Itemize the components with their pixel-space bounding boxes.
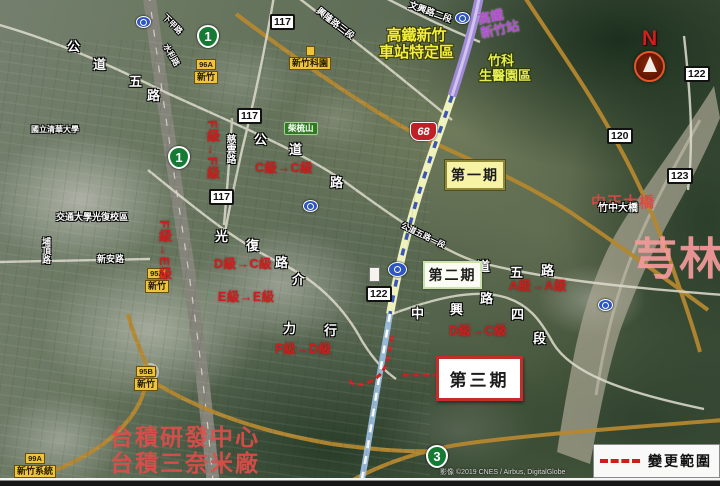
shield-number: 3 xyxy=(433,449,440,464)
county-route-117c: 117 xyxy=(209,189,234,205)
tsmc-fab-label: 台積三奈米廠 xyxy=(110,450,260,476)
interchange-name: 新竹系統 xyxy=(14,465,56,478)
phase-3-label: 第三期 xyxy=(436,356,523,401)
road-label: 路 xyxy=(330,172,343,191)
county-route-117b: 117 xyxy=(237,108,262,124)
road-label: 中 xyxy=(411,303,424,322)
qionglin-label: 芎林 xyxy=(633,238,720,282)
county-route-123: 123 xyxy=(667,168,693,184)
park-icon xyxy=(306,46,315,56)
legend-label: 變更範圍 xyxy=(648,451,712,471)
road-label: 五 xyxy=(510,262,523,281)
compass-north-label: N xyxy=(642,27,657,51)
grade-change-label: D級→C級 xyxy=(449,320,507,339)
hill-sign: 柴梳山 xyxy=(284,122,318,135)
interchange-code: 96A xyxy=(196,59,216,70)
county-route-120: 120 xyxy=(607,128,633,144)
interchange-icon xyxy=(388,262,407,277)
road-label: 路 xyxy=(480,288,493,307)
county-route-122a: 122 xyxy=(684,66,710,82)
road-label: 五 xyxy=(129,71,142,90)
compass-rose-icon xyxy=(634,51,665,82)
shield-number: 1 xyxy=(204,29,211,44)
road-label: 介 xyxy=(292,269,305,288)
bottom-bar xyxy=(0,478,720,486)
tsmc-rd-label: 台積研發中心 xyxy=(110,424,260,450)
interchange-sign-99a: 99A 新竹系統 xyxy=(14,453,56,478)
park-name: 新竹科園 xyxy=(289,57,331,70)
grade-change-label: C級→C級 xyxy=(255,157,313,176)
place-label: 交通大學光復校區 xyxy=(56,210,128,223)
interchange-code: 99A xyxy=(25,453,45,464)
map-attribution: 影像 ©2019 CNES / Airbus, DigitalGlobe xyxy=(440,467,565,477)
shield-number: 1 xyxy=(175,150,182,165)
grade-change-label: D級→C級 xyxy=(214,253,272,272)
hsr-district-line2: 車站特定區 xyxy=(379,45,454,62)
place-label: 國立清華大學 xyxy=(31,124,79,135)
county-route-117a: 117 xyxy=(270,14,295,30)
hsr-district-label: 高鐵新竹 車站特定區 xyxy=(379,28,454,61)
grade-change-label: F級→D級 xyxy=(275,338,332,357)
road-label: 公 xyxy=(67,36,80,55)
map-figure: 1 1 3 68 117 117 117 120 122 123 122 96A… xyxy=(0,0,720,486)
road-label: 興 xyxy=(450,299,463,318)
road-label: 四 xyxy=(511,304,524,323)
biomed-line1: 竹科 xyxy=(488,54,531,69)
phase-1-label: 第一期 xyxy=(445,160,505,190)
small-sign xyxy=(369,267,380,282)
science-park-sign: 新竹科園 xyxy=(289,46,331,70)
interchange-icon xyxy=(598,299,613,311)
hsr-district-line1: 高鐵新竹 xyxy=(379,28,454,45)
route-shield-expressway-68: 68 xyxy=(410,122,437,141)
road-label: 道 xyxy=(289,139,302,158)
legend: 變更範圍 xyxy=(593,444,720,478)
biomed-park-label: 竹科 生醫園區 xyxy=(479,54,531,84)
road-label: 埔頂路 xyxy=(40,237,53,264)
road-label: 路 xyxy=(275,252,288,271)
road-label: 段 xyxy=(533,328,546,347)
interchange-sign-95b: 95B 新竹 xyxy=(134,366,158,391)
road-label: 公 xyxy=(254,129,267,148)
road-label: 行 xyxy=(324,320,337,339)
road-label: 力 xyxy=(283,318,296,337)
shield-number: 68 xyxy=(417,126,429,138)
county-route-122b: 122 xyxy=(366,286,392,302)
road-label: 路 xyxy=(147,85,160,104)
grade-change-label: F級→E級 xyxy=(155,220,174,281)
interchange-icon xyxy=(136,16,151,28)
road-label: 新安路 xyxy=(97,252,124,265)
biomed-line2: 生醫園區 xyxy=(479,69,531,84)
change-scope-dash-icon xyxy=(600,459,640,463)
interchange-name: 新竹 xyxy=(145,280,169,293)
road-label: 慈雲路 xyxy=(222,134,237,164)
interchange-icon xyxy=(303,200,318,212)
interchange-sign-96a: 96A 新竹 xyxy=(194,59,218,84)
road-label: 復 xyxy=(246,235,259,254)
interchange-icon xyxy=(455,12,470,24)
road-label: 竹中大橋 xyxy=(598,199,638,214)
road-label: 光 xyxy=(215,226,228,245)
road-label: 道 xyxy=(93,54,106,73)
grade-change-label: E級→E級 xyxy=(218,286,275,305)
interchange-name: 新竹 xyxy=(194,71,218,84)
road-label: 路 xyxy=(541,260,554,279)
phase-2-label: 第二期 xyxy=(423,261,482,289)
grade-change-label: F級→F級 xyxy=(203,120,222,180)
interchange-code: 95B xyxy=(136,366,156,377)
interchange-name: 新竹 xyxy=(134,378,158,391)
